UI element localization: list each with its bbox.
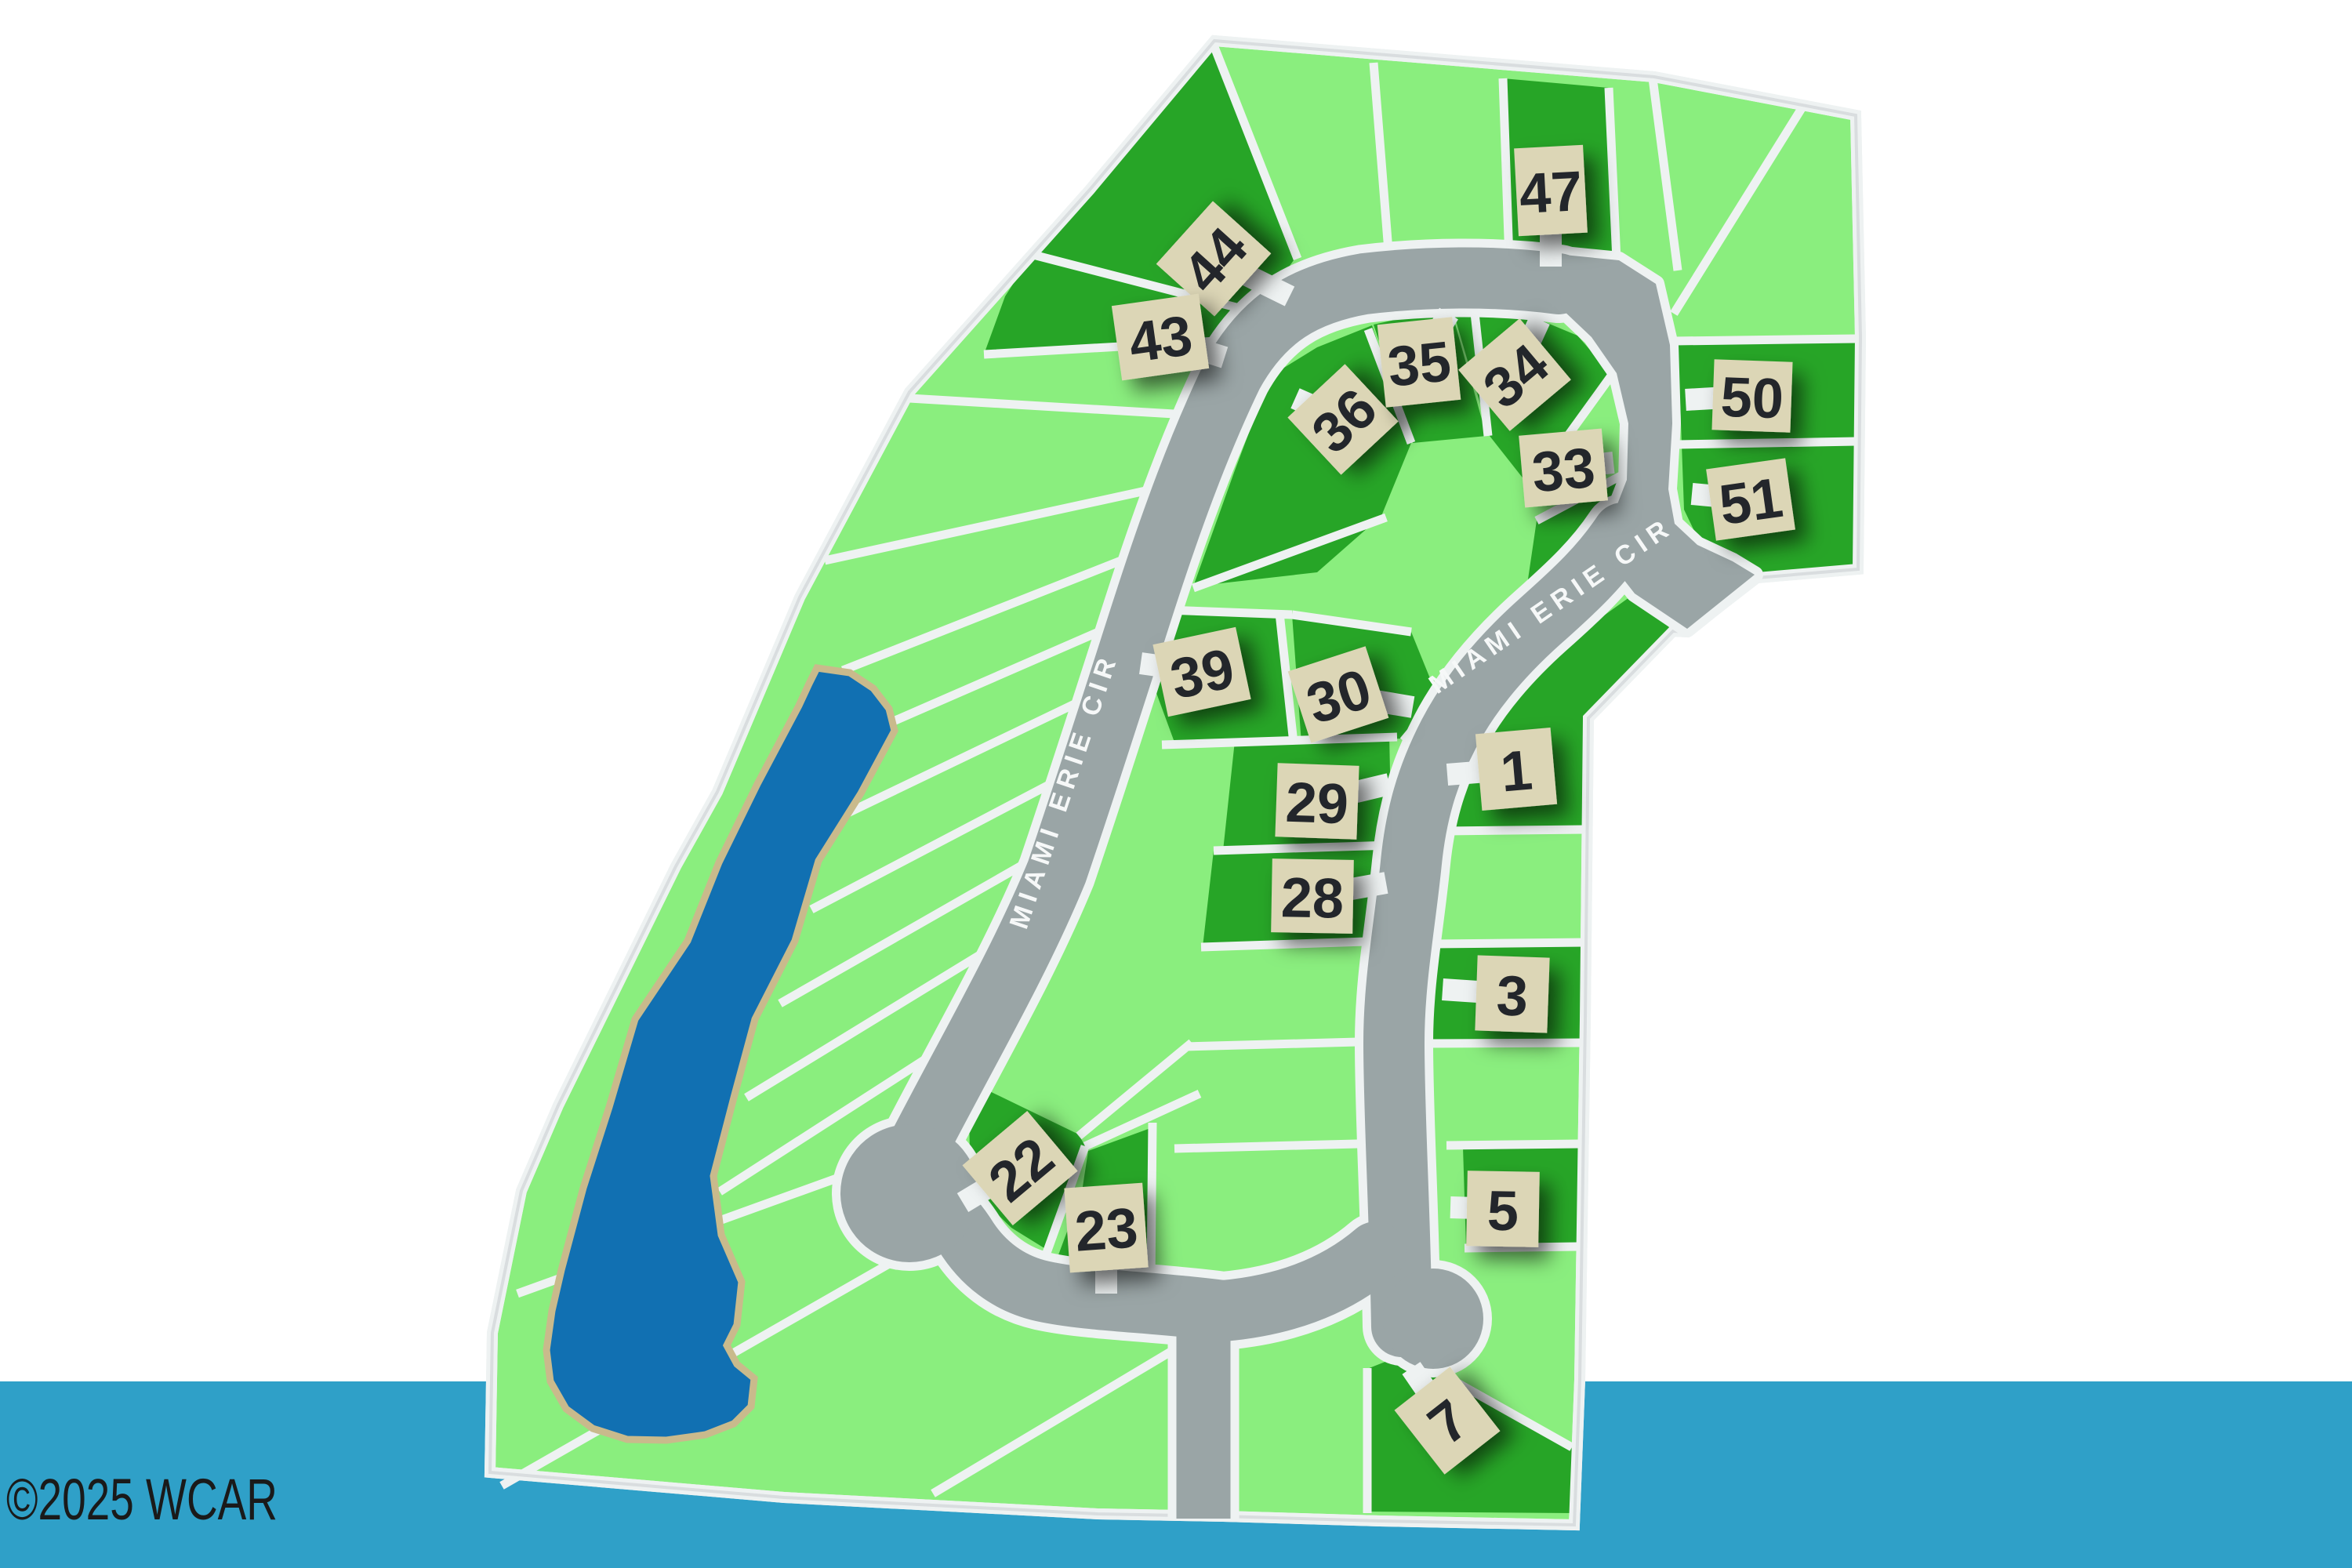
svg-text:29: 29: [1284, 771, 1349, 837]
svg-text:33: 33: [1530, 437, 1598, 505]
svg-text:3: 3: [1495, 964, 1529, 1028]
svg-text:50: 50: [1719, 366, 1784, 431]
svg-text:39: 39: [1165, 637, 1240, 711]
svg-text:47: 47: [1518, 160, 1584, 226]
svg-text:5: 5: [1486, 1180, 1519, 1243]
svg-text:28: 28: [1280, 866, 1344, 930]
svg-text:©2025 WCAR: ©2025 WCAR: [6, 1467, 278, 1532]
svg-text:35: 35: [1385, 330, 1454, 399]
svg-text:51: 51: [1715, 466, 1786, 537]
svg-text:1: 1: [1498, 739, 1535, 804]
svg-text:23: 23: [1073, 1196, 1139, 1263]
svg-text:43: 43: [1125, 304, 1196, 375]
